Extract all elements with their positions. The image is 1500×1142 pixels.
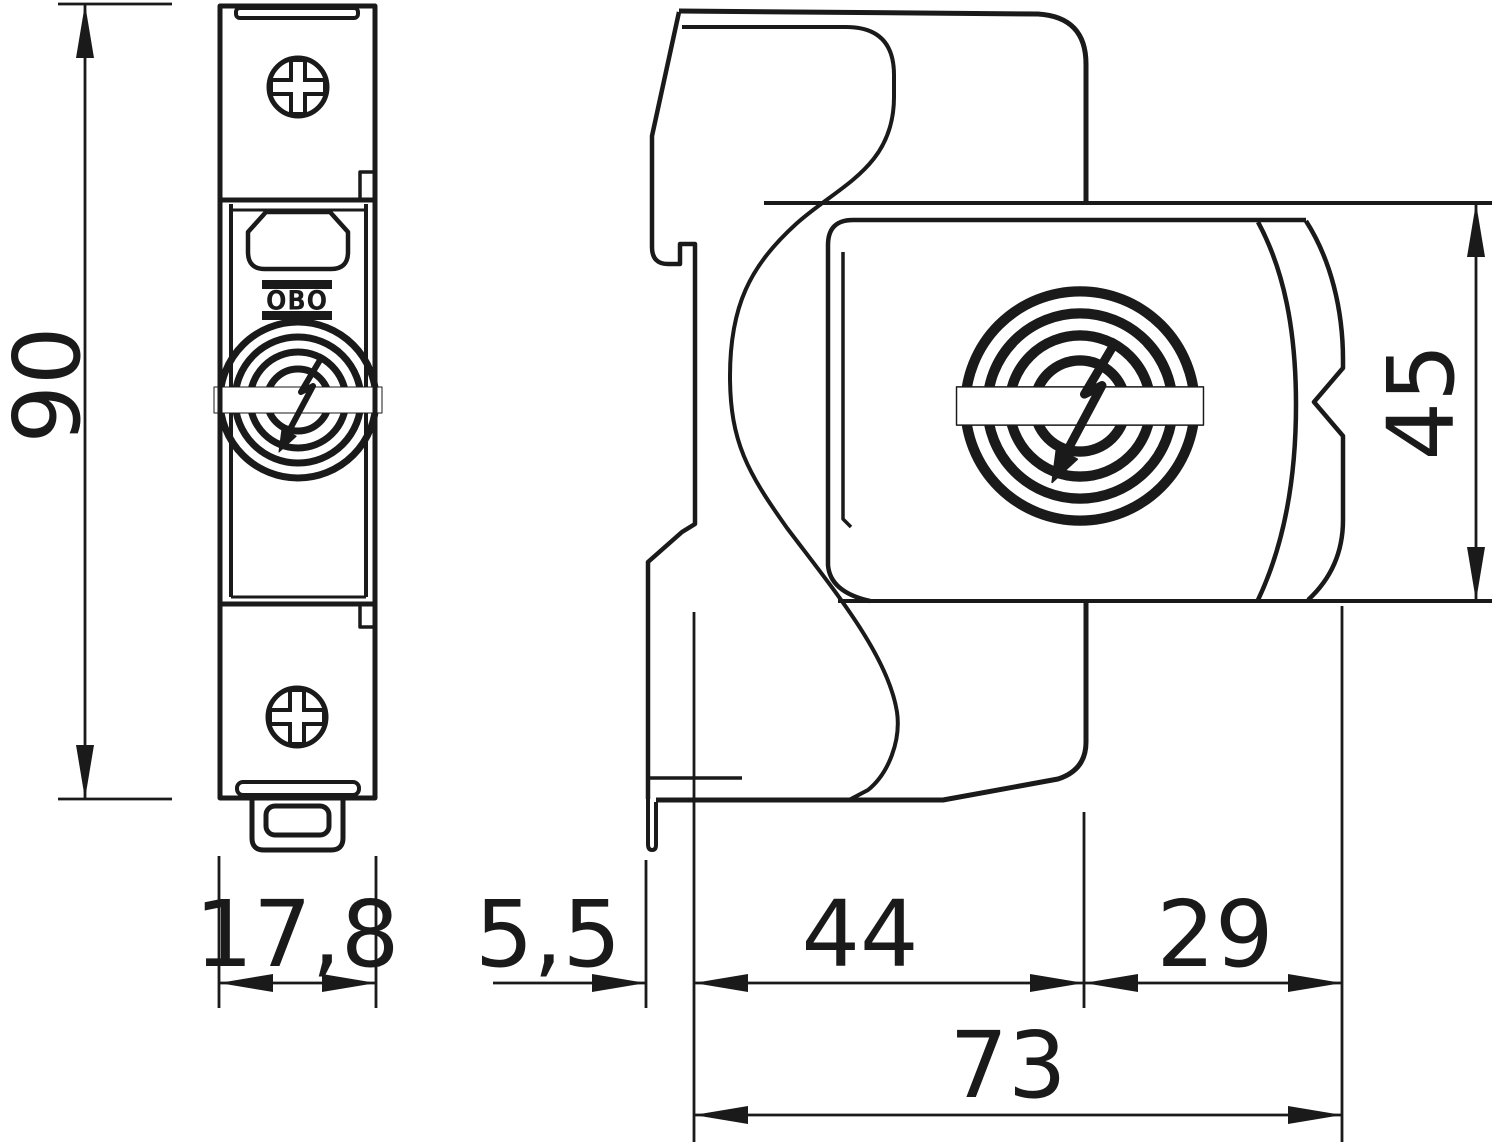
dimension-rail-depth: 5,5 bbox=[475, 860, 646, 1008]
release-lever-curve bbox=[682, 27, 898, 800]
din-rail-hook-profile bbox=[648, 12, 695, 799]
dim-label-17-8: 17,8 bbox=[195, 881, 400, 988]
surge-protection-logo-icon bbox=[957, 291, 1204, 520]
release-tab bbox=[648, 799, 656, 850]
dimension-side-height: 45 bbox=[1368, 203, 1485, 601]
dim-label-5-5: 5,5 bbox=[475, 881, 621, 988]
dimensions: 90 17,8 45 5,5 bbox=[0, 4, 1485, 1142]
dimension-drawing: OBO bbox=[0, 0, 1500, 1142]
obo-logo-text: OBO bbox=[266, 286, 328, 317]
front-view: OBO bbox=[214, 6, 382, 850]
front-face-silhouette bbox=[1306, 221, 1343, 600]
dimension-total-depth: 73 bbox=[694, 1012, 1342, 1124]
phillips-screw-icon bbox=[269, 58, 327, 116]
din-clip-hole bbox=[266, 806, 329, 835]
dim-label-44: 44 bbox=[801, 881, 918, 988]
top-slot bbox=[236, 8, 358, 18]
label-window bbox=[248, 212, 348, 269]
bottom-slot bbox=[237, 782, 359, 795]
lower-housing-outline bbox=[656, 601, 1086, 800]
phillips-screw-icon bbox=[268, 688, 326, 746]
dim-label-45: 45 bbox=[1368, 343, 1475, 460]
front-face-inner-line bbox=[1258, 222, 1296, 600]
side-view bbox=[648, 11, 1492, 850]
obo-logo: OBO bbox=[262, 280, 332, 320]
surge-protection-logo-icon bbox=[214, 322, 382, 478]
technical-drawing-page: OBO bbox=[0, 0, 1500, 1142]
module-label-strip bbox=[843, 252, 851, 527]
dimension-front-height: 90 bbox=[0, 4, 172, 799]
dim-label-90: 90 bbox=[0, 326, 101, 443]
dim-label-29: 29 bbox=[1156, 881, 1273, 988]
dim-label-73: 73 bbox=[949, 1012, 1066, 1119]
dimension-front-width: 17,8 bbox=[195, 856, 400, 1008]
dimension-rear-depth: 29 bbox=[1084, 606, 1342, 1142]
